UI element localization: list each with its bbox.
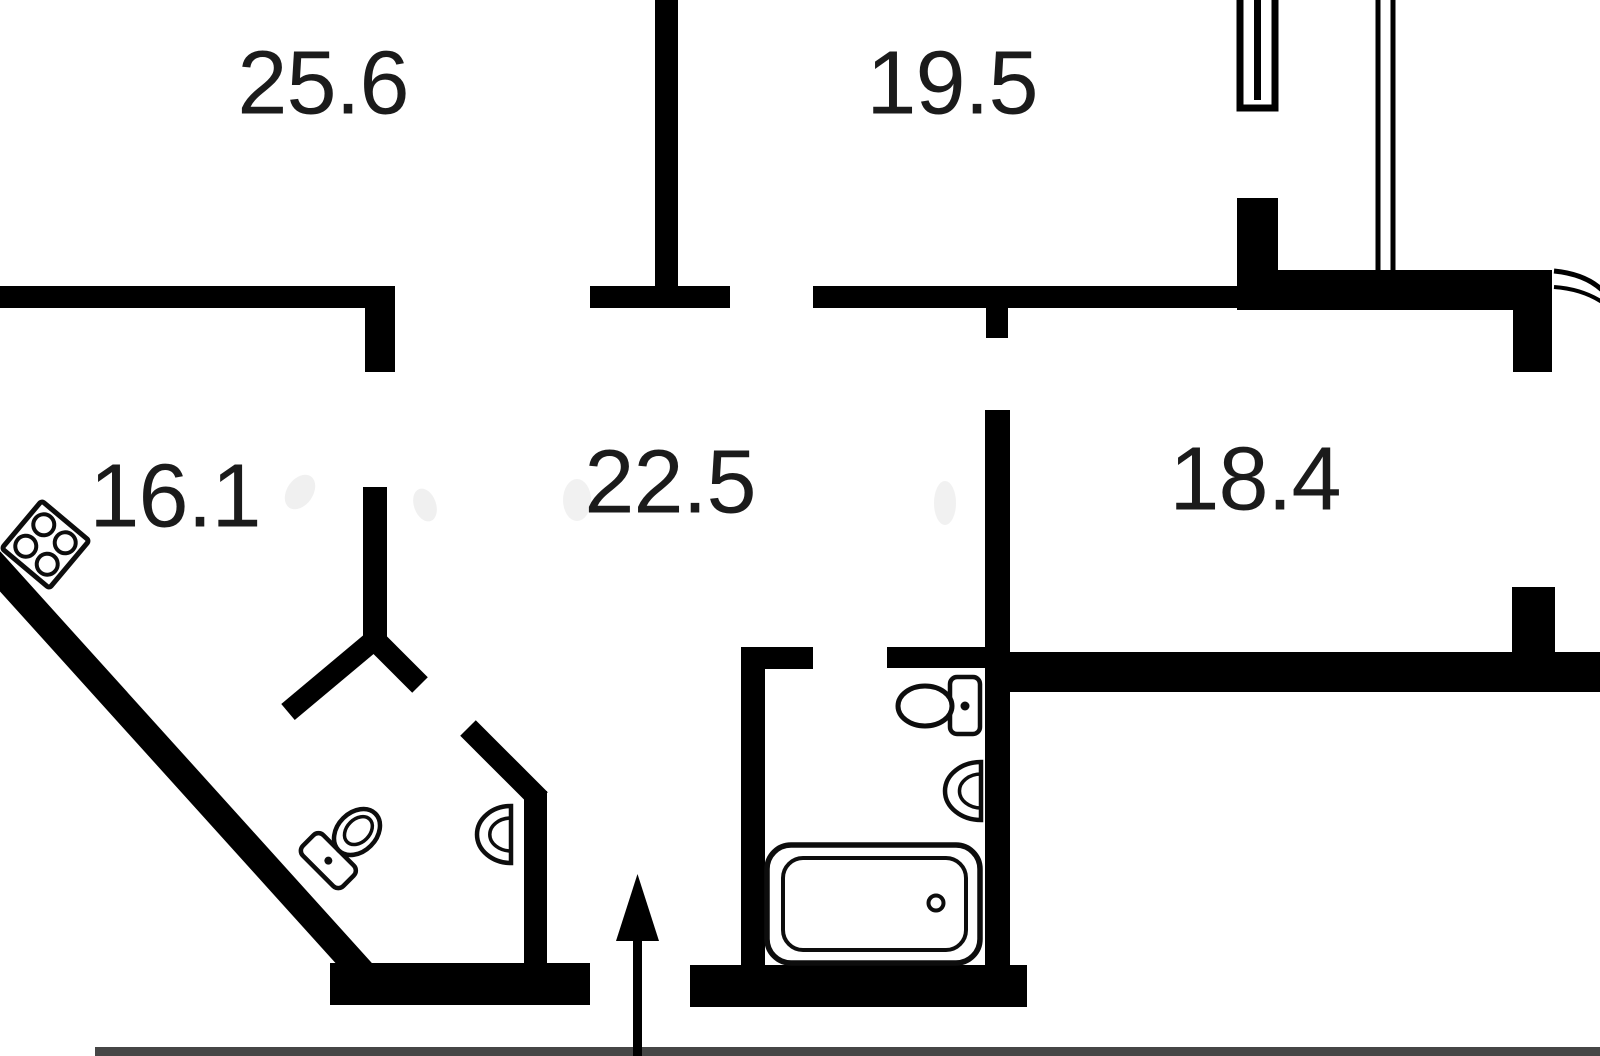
wall-left-jamb-tick	[365, 300, 395, 372]
wall-mid-jamb-tick	[986, 300, 1008, 338]
room-area-label-hallway: 22.5	[584, 432, 755, 535]
wall-mid-horizontal	[813, 286, 1237, 308]
wall-bathroom-top-right-seg	[887, 647, 989, 668]
wall-balcony-stub	[1237, 198, 1278, 278]
wc-sink-icon	[477, 806, 511, 863]
entrance-arrow-head	[616, 874, 659, 941]
wall-bathroom-left	[741, 647, 765, 1007]
entrance-arrow-shaft	[633, 932, 642, 1056]
toilet-bowl	[898, 686, 952, 726]
watermark-smudge	[934, 481, 956, 525]
floor-edge-strip	[95, 1047, 1600, 1056]
wall-right-upper-stub	[1513, 305, 1552, 372]
toilet-button	[961, 702, 970, 711]
wall-top-right-horizontal	[1237, 270, 1552, 310]
wall-room-right-bottom	[985, 652, 1600, 692]
wall-wc-right	[524, 791, 547, 967]
wall-diagonal	[0, 558, 378, 990]
bathroom-toilet-icon	[898, 677, 980, 734]
room-area-label-kitchen: 16.1	[89, 446, 260, 549]
watermark-smudge	[278, 469, 321, 515]
wall-kitchen-hall-divider	[363, 487, 387, 644]
wall-right-lower-stub	[1512, 587, 1555, 662]
wall-fork-left-branch	[288, 640, 374, 712]
wc-toilet-icon	[298, 793, 396, 891]
wall-hall-room-right-divider	[985, 410, 1010, 970]
bathtub-drain	[929, 896, 944, 911]
wall-top-vertical	[655, 0, 678, 290]
bathroom-sink-icon	[945, 762, 981, 820]
wall-top-t-base	[590, 286, 730, 308]
openings	[1240, 0, 1600, 302]
bathtub-icon	[767, 845, 980, 963]
wall-bathroom-bottom	[690, 965, 1027, 1007]
wall-fork-right-branch	[376, 641, 420, 685]
balcony-door-arc-icon	[1554, 287, 1600, 302]
entrance-arrow-icon	[616, 874, 659, 1056]
wall-left-horizontal	[0, 286, 395, 308]
floor-plan: 25.6 19.5 16.1 22.5 18.4	[0, 0, 1600, 1056]
wall-wc-door-jamb	[468, 728, 540, 800]
room-area-label-top-middle: 19.5	[866, 33, 1037, 136]
room-area-label-top-left: 25.6	[237, 33, 408, 136]
room-area-label-room-right: 18.4	[1169, 429, 1340, 532]
watermark-smudge	[409, 485, 441, 524]
